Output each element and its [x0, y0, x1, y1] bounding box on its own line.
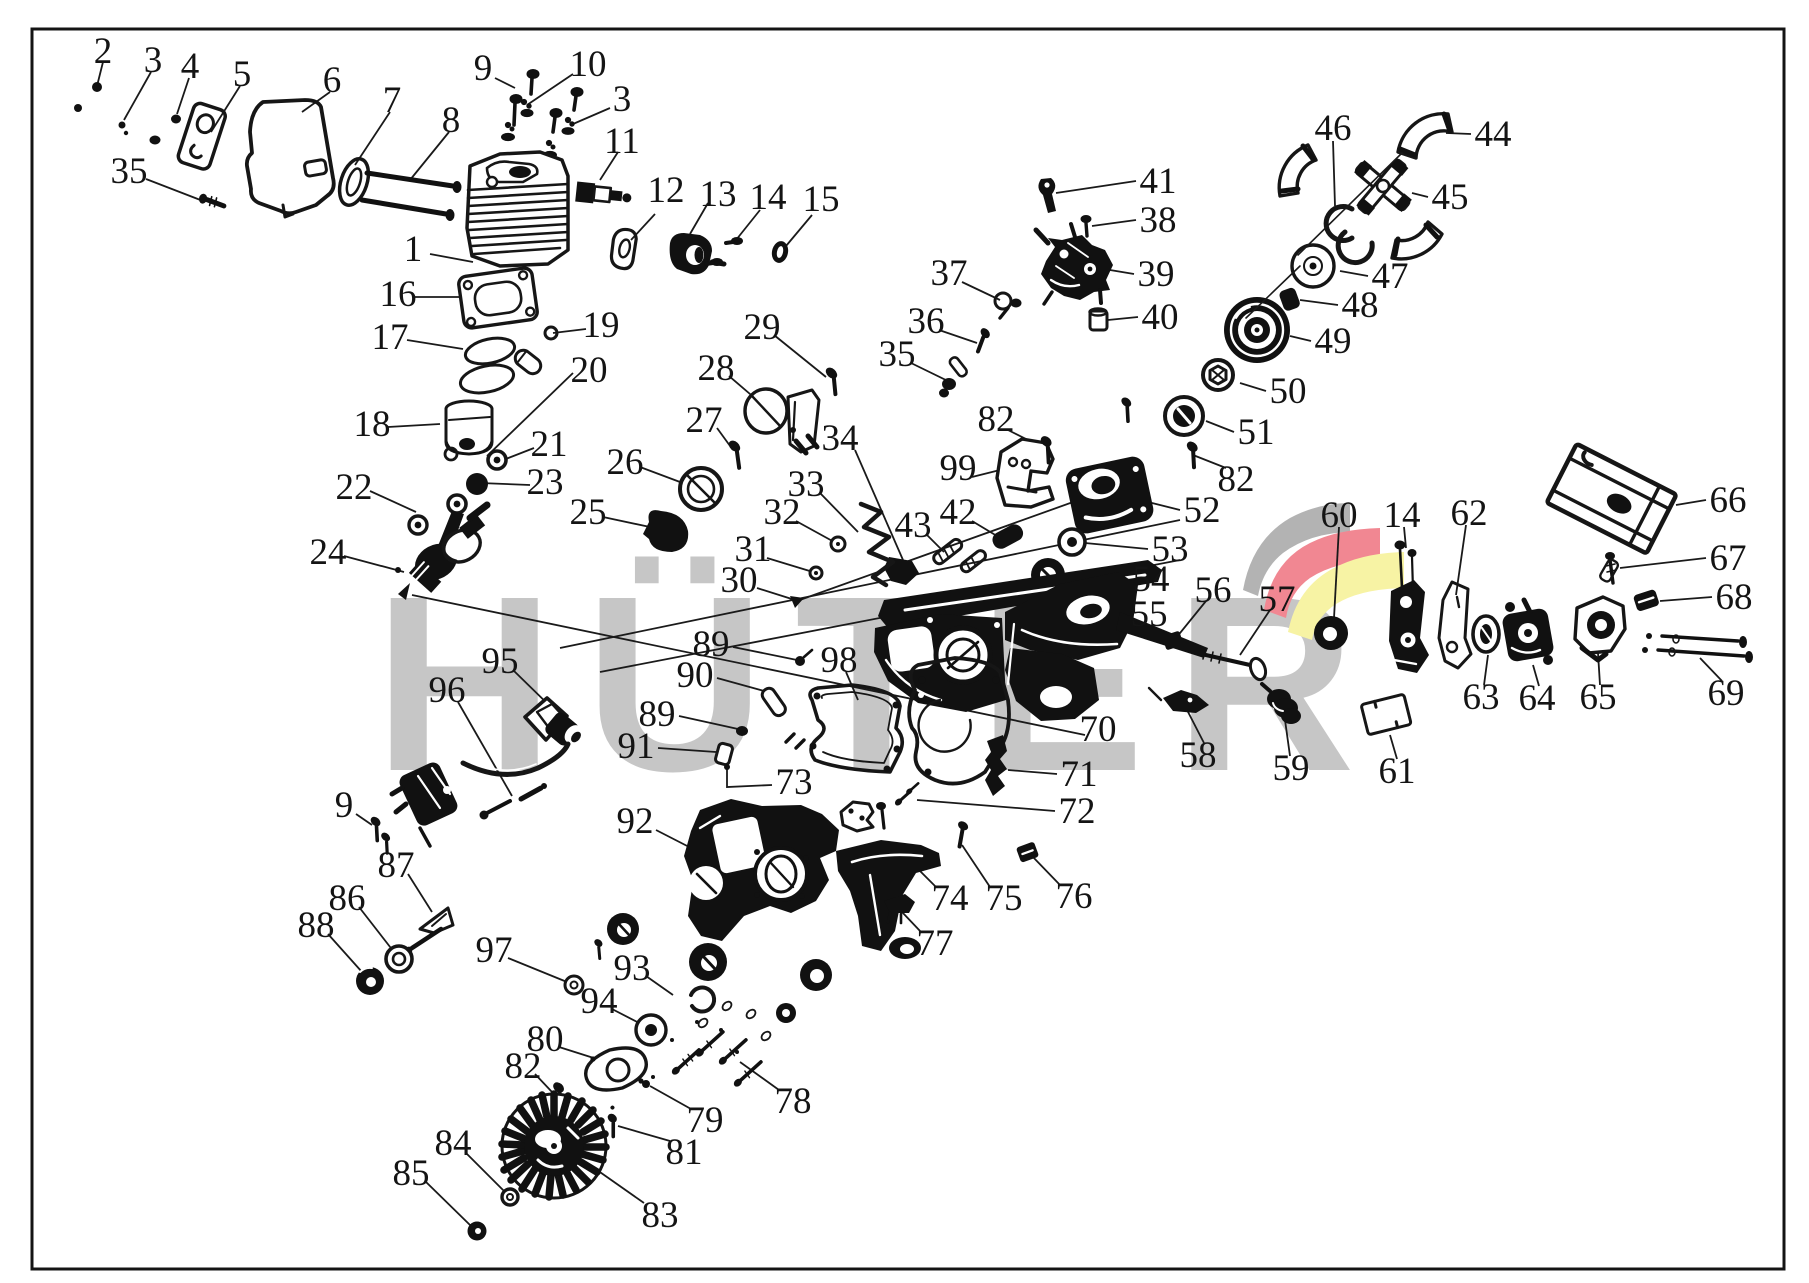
- svg-text:43: 43: [895, 505, 932, 546]
- svg-text:98: 98: [821, 640, 858, 681]
- svg-text:92: 92: [617, 801, 654, 842]
- svg-text:51: 51: [1238, 412, 1275, 453]
- svg-text:77: 77: [917, 923, 954, 964]
- svg-text:75: 75: [986, 878, 1023, 919]
- svg-text:35: 35: [111, 151, 148, 192]
- svg-text:30: 30: [721, 560, 758, 601]
- svg-text:90: 90: [677, 655, 714, 696]
- svg-text:74: 74: [932, 878, 969, 919]
- svg-text:94: 94: [581, 981, 618, 1022]
- svg-text:12: 12: [648, 170, 685, 211]
- svg-text:70: 70: [1080, 709, 1117, 750]
- svg-text:9: 9: [335, 785, 354, 826]
- svg-text:65: 65: [1580, 677, 1617, 718]
- svg-text:68: 68: [1716, 577, 1753, 618]
- svg-text:59: 59: [1273, 748, 1310, 789]
- svg-text:76: 76: [1056, 876, 1093, 917]
- svg-text:40: 40: [1142, 297, 1179, 338]
- svg-text:32: 32: [764, 492, 801, 533]
- svg-text:99: 99: [940, 448, 977, 489]
- svg-text:56: 56: [1195, 570, 1232, 611]
- svg-text:84: 84: [435, 1123, 472, 1164]
- svg-text:55: 55: [1131, 594, 1168, 635]
- svg-text:93: 93: [614, 948, 651, 989]
- svg-text:11: 11: [604, 121, 640, 162]
- svg-text:88: 88: [298, 905, 335, 946]
- svg-text:4: 4: [181, 46, 200, 87]
- svg-text:17: 17: [372, 317, 409, 358]
- svg-text:14: 14: [750, 177, 787, 218]
- svg-text:34: 34: [822, 418, 859, 459]
- svg-text:58: 58: [1180, 735, 1217, 776]
- svg-text:22: 22: [336, 467, 373, 508]
- svg-text:7: 7: [383, 80, 402, 121]
- svg-text:24: 24: [310, 532, 347, 573]
- svg-text:69: 69: [1708, 673, 1745, 714]
- svg-text:5: 5: [233, 54, 252, 95]
- svg-text:62: 62: [1451, 493, 1488, 534]
- svg-text:35: 35: [879, 334, 916, 375]
- svg-text:78: 78: [775, 1081, 812, 1122]
- svg-text:46: 46: [1315, 108, 1352, 149]
- svg-text:96: 96: [429, 670, 466, 711]
- svg-text:28: 28: [698, 348, 735, 389]
- svg-text:63: 63: [1463, 677, 1500, 718]
- svg-text:19: 19: [583, 305, 620, 346]
- svg-text:14: 14: [1384, 495, 1421, 536]
- svg-text:3: 3: [613, 79, 632, 120]
- svg-text:45: 45: [1432, 177, 1469, 218]
- svg-text:16: 16: [380, 274, 417, 315]
- svg-text:50: 50: [1270, 371, 1307, 412]
- svg-text:91: 91: [618, 726, 655, 767]
- svg-text:71: 71: [1061, 754, 1098, 795]
- svg-text:3: 3: [144, 40, 163, 81]
- svg-text:49: 49: [1315, 321, 1352, 362]
- svg-text:21: 21: [531, 424, 568, 465]
- svg-text:15: 15: [803, 179, 840, 220]
- svg-text:82: 82: [1218, 459, 1255, 500]
- svg-text:66: 66: [1710, 480, 1747, 521]
- svg-text:41: 41: [1140, 161, 1177, 202]
- svg-text:29: 29: [744, 307, 781, 348]
- svg-text:72: 72: [1059, 791, 1096, 832]
- svg-text:97: 97: [476, 930, 513, 971]
- svg-text:61: 61: [1379, 751, 1416, 792]
- svg-text:85: 85: [393, 1153, 430, 1194]
- svg-text:67: 67: [1710, 538, 1747, 579]
- svg-text:6: 6: [323, 60, 342, 101]
- svg-text:39: 39: [1138, 254, 1175, 295]
- svg-text:25: 25: [570, 492, 607, 533]
- svg-text:10: 10: [570, 44, 607, 85]
- svg-text:23: 23: [527, 462, 564, 503]
- svg-text:26: 26: [607, 442, 644, 483]
- svg-text:2: 2: [94, 31, 113, 72]
- svg-text:82: 82: [978, 399, 1015, 440]
- svg-text:20: 20: [571, 350, 608, 391]
- svg-text:42: 42: [940, 492, 977, 533]
- svg-text:18: 18: [354, 404, 391, 445]
- svg-text:57: 57: [1259, 579, 1296, 620]
- svg-text:81: 81: [666, 1132, 703, 1173]
- svg-text:38: 38: [1140, 200, 1177, 241]
- svg-text:44: 44: [1475, 114, 1512, 155]
- svg-text:13: 13: [700, 174, 737, 215]
- svg-text:37: 37: [931, 253, 968, 294]
- svg-text:87: 87: [378, 845, 415, 886]
- svg-text:60: 60: [1321, 495, 1358, 536]
- svg-text:64: 64: [1519, 678, 1556, 719]
- svg-text:27: 27: [686, 400, 723, 441]
- svg-text:1: 1: [404, 229, 423, 270]
- svg-text:73: 73: [776, 762, 813, 803]
- svg-text:48: 48: [1342, 285, 1379, 326]
- svg-text:95: 95: [482, 641, 519, 682]
- svg-text:83: 83: [642, 1195, 679, 1236]
- svg-text:52: 52: [1184, 490, 1221, 531]
- svg-text:82: 82: [505, 1046, 542, 1087]
- svg-text:9: 9: [474, 48, 493, 89]
- svg-text:8: 8: [442, 100, 461, 141]
